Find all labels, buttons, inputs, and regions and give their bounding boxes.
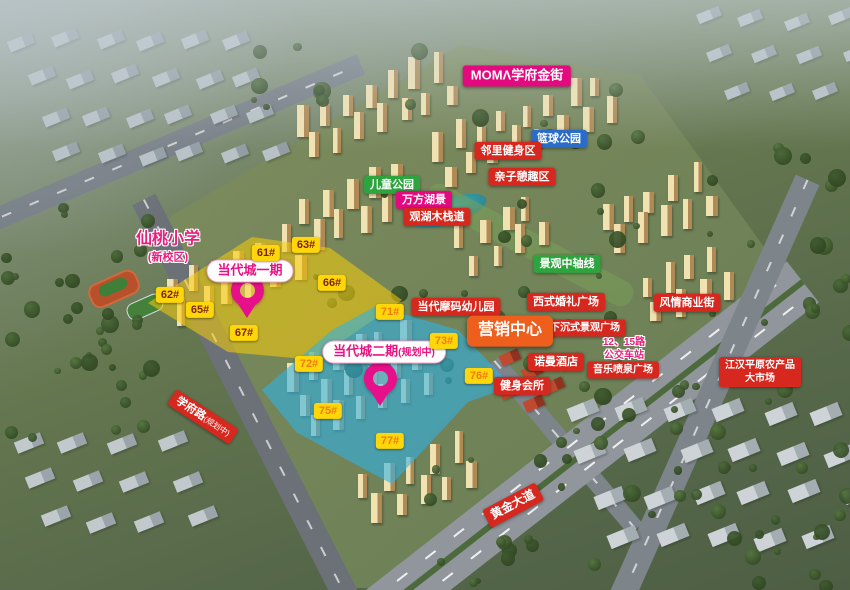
tree <box>771 515 780 524</box>
residential-tower <box>706 196 718 216</box>
tree <box>828 169 846 187</box>
tree <box>833 442 849 458</box>
pin-tail <box>371 392 389 406</box>
tree <box>623 485 641 503</box>
residential-tower <box>661 205 672 235</box>
tree <box>800 153 811 164</box>
building-76-badge: 76# <box>465 368 493 384</box>
tree <box>432 465 441 474</box>
tree <box>102 308 114 320</box>
tree <box>109 364 116 371</box>
residential-tower <box>442 477 450 499</box>
tree <box>116 380 128 392</box>
building-62-badge: 62# <box>156 287 184 303</box>
city-block <box>157 431 187 453</box>
tree <box>96 327 104 335</box>
tree <box>765 398 772 405</box>
phase2-location-pin-icon <box>362 362 398 410</box>
tree <box>591 183 606 198</box>
bus-stop-line2: 公交车站 <box>603 349 645 362</box>
tree <box>810 237 826 253</box>
tree <box>834 510 846 522</box>
tree <box>556 437 567 448</box>
tree <box>814 524 830 540</box>
city-block <box>728 438 761 462</box>
tree <box>597 208 604 215</box>
residential-tower <box>707 247 716 272</box>
residential-tower <box>466 461 477 488</box>
tree <box>501 551 516 566</box>
city-block <box>106 433 136 455</box>
building-67-badge: 67# <box>230 325 258 341</box>
landscape-axis-label: 景观中轴线 <box>534 255 601 273</box>
tree <box>120 397 131 408</box>
aerial-site-plan: MOMΛ学府金街 篮球公园 邻里健身区 亲子憩趣区 儿童公园 万方湖景 观湖木栈… <box>0 0 850 590</box>
city-block <box>787 479 820 503</box>
city-block <box>41 505 71 527</box>
tree <box>70 357 82 369</box>
tree <box>55 278 64 287</box>
residential-tower <box>480 220 491 243</box>
city-block <box>57 432 87 454</box>
tree <box>28 433 37 442</box>
tree <box>143 360 160 377</box>
bus-stop-label: 12、15路 公交车站 <box>597 334 651 364</box>
lake-boardwalk-label: 观湖木栈道 <box>404 208 471 226</box>
tree <box>461 290 468 297</box>
school-name: 仙桃小学 <box>136 229 200 250</box>
city-block <box>134 511 164 533</box>
wedding-plaza-label: 西式婚礼广场 <box>527 293 605 311</box>
city-block <box>72 470 102 492</box>
residential-tower <box>397 494 407 515</box>
residential-tower <box>445 167 457 187</box>
residential-tower <box>299 199 309 224</box>
tree <box>752 576 766 590</box>
tree <box>137 420 150 433</box>
phase2-planning-note: (规划中) <box>398 348 435 359</box>
tree <box>469 578 478 587</box>
residential-tower <box>684 255 694 280</box>
tree <box>674 490 686 502</box>
tree <box>819 580 833 590</box>
residential-tower <box>694 162 702 193</box>
tree <box>573 428 579 434</box>
residential-tower <box>683 199 692 229</box>
city-block <box>765 402 798 426</box>
tree <box>54 368 61 375</box>
city-block <box>172 471 202 493</box>
tree <box>71 302 83 314</box>
residential-tower <box>643 192 653 213</box>
tree <box>521 235 532 246</box>
tree <box>24 301 41 318</box>
tree <box>132 320 142 330</box>
city-block <box>25 467 55 489</box>
tree <box>63 314 73 324</box>
tree <box>81 354 98 371</box>
tree <box>517 199 527 209</box>
tree <box>588 558 601 571</box>
residential-tower <box>334 209 342 238</box>
residential-tower <box>603 204 614 230</box>
phase2-title-label: 当代城二期(规划中) <box>322 341 446 364</box>
phase2-title-text: 当代城二期 <box>333 344 398 359</box>
tree <box>633 223 639 229</box>
building-65-badge: 65# <box>186 302 214 318</box>
tree <box>594 436 608 450</box>
lake-view-label: 万方湖景 <box>396 191 452 209</box>
tree <box>842 325 850 341</box>
tree <box>745 548 762 565</box>
haze-overlay <box>0 0 300 260</box>
building-63-badge: 63# <box>292 237 320 253</box>
residential-tower <box>503 207 515 229</box>
residential-tower <box>361 206 372 233</box>
tree <box>622 408 636 422</box>
tree <box>558 483 565 490</box>
city-block <box>86 513 116 535</box>
school-label: 仙桃小学 (新校区) <box>130 227 206 266</box>
tree <box>692 383 700 391</box>
residential-tower <box>666 262 675 293</box>
commercial-street-label: 风情商业街 <box>654 294 721 312</box>
tree <box>749 464 757 472</box>
tree <box>591 417 605 431</box>
city-block <box>188 505 218 527</box>
building-71-badge: 71# <box>376 304 404 320</box>
city-block <box>119 471 149 493</box>
tree <box>562 454 572 464</box>
building-72-badge: 72# <box>295 356 323 372</box>
tree <box>796 462 809 475</box>
tree <box>809 569 820 580</box>
residential-tower <box>469 256 478 276</box>
tree <box>670 422 683 435</box>
tree <box>811 304 820 313</box>
tree <box>498 231 510 243</box>
tree <box>841 274 850 284</box>
neighbor-fitness-label: 邻里健身区 <box>475 142 542 160</box>
tree <box>524 535 533 544</box>
city-block <box>809 401 842 425</box>
residential-tower <box>724 272 734 300</box>
parent-child-zone-label: 亲子憩趣区 <box>489 168 556 186</box>
tree <box>839 488 850 504</box>
tree <box>671 406 678 413</box>
pin-ring <box>364 362 397 395</box>
tree <box>774 548 781 555</box>
sales-center-label: 营销中心 <box>467 316 553 347</box>
fountain-plaza-label: 音乐喷泉广场 <box>587 362 659 379</box>
kindergarten-label: 当代摩码幼儿园 <box>412 298 501 316</box>
tree <box>718 461 731 474</box>
tree <box>711 504 726 519</box>
farm-market-line2: 大市场 <box>725 372 795 385</box>
building-66-badge: 66# <box>318 275 346 291</box>
tree <box>648 511 655 518</box>
phase1-title-label: 当代城一期 <box>206 260 293 283</box>
city-block <box>737 481 770 505</box>
farm-market-line1: 江汉平原农产品 <box>725 359 795 372</box>
hotel-label: 诺曼酒店 <box>528 353 584 371</box>
building-77-badge: 77# <box>376 433 404 449</box>
school-campus-note: (新校区) <box>136 250 200 264</box>
tree <box>710 424 726 440</box>
tree <box>111 425 121 435</box>
farm-market-label: 江汉平原农产品 大市场 <box>719 357 801 387</box>
residential-tower <box>347 179 359 209</box>
residential-tower <box>668 175 679 202</box>
residential-tower <box>371 493 383 523</box>
residential-tower <box>358 474 367 498</box>
tree <box>680 380 689 389</box>
fitness-club-label: 健身会所 <box>494 377 550 395</box>
tree <box>496 537 506 547</box>
residential-tower <box>494 246 502 266</box>
residential-tower <box>624 196 632 222</box>
tree <box>755 530 764 539</box>
tree <box>65 274 79 288</box>
bus-stop-line1: 12、15路 <box>603 336 645 349</box>
building-61-badge: 61# <box>252 245 280 261</box>
tree <box>5 332 20 347</box>
building-75-badge: 75# <box>314 403 342 419</box>
residential-tower <box>323 190 334 217</box>
tree <box>12 273 19 280</box>
residential-tower <box>455 431 463 463</box>
tree <box>594 388 611 405</box>
tree <box>419 289 428 298</box>
tree <box>5 426 18 439</box>
residential-tower <box>643 278 652 297</box>
tree <box>534 454 548 468</box>
tree <box>727 531 742 546</box>
pin-tail <box>238 304 256 318</box>
residential-tower <box>539 222 550 245</box>
tree <box>101 344 112 355</box>
building-73-badge: 73# <box>430 333 458 349</box>
moma-street-label: MOMΛ学府金街 <box>463 66 571 87</box>
